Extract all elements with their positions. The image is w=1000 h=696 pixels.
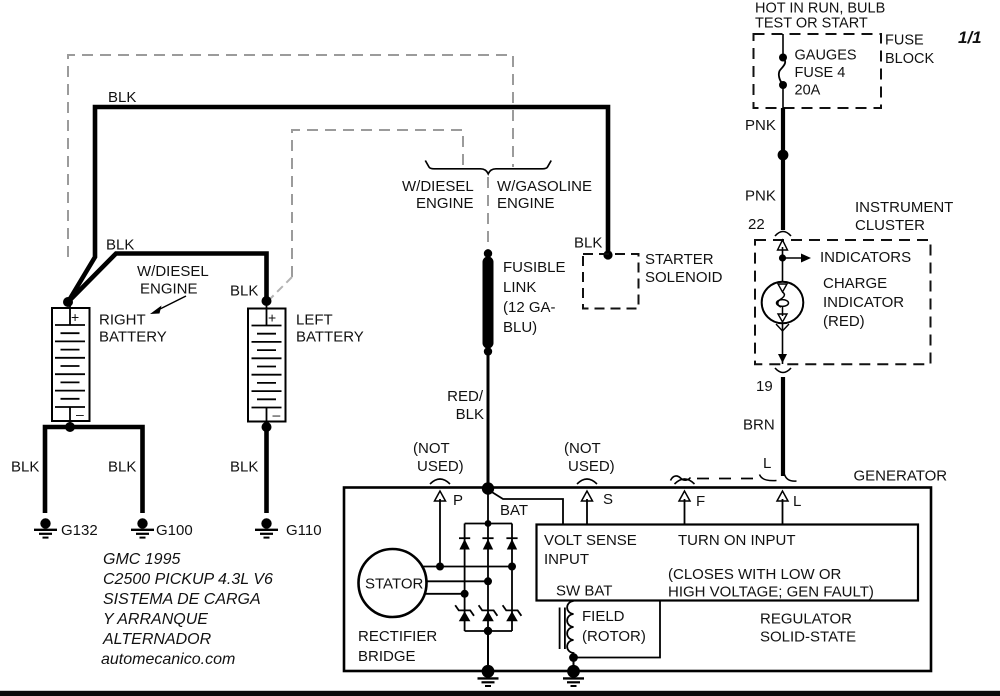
svg-text:PNK: PNK [745,117,776,134]
svg-text:PNK: PNK [745,188,776,205]
svg-text:RIGHT: RIGHT [99,312,146,329]
svg-text:SOLENOID: SOLENOID [645,269,723,286]
svg-text:USED): USED) [568,458,615,475]
svg-text:SW BAT: SW BAT [556,583,612,600]
svg-text:HIGH VOLTAGE; GEN FAULT): HIGH VOLTAGE; GEN FAULT) [668,584,874,601]
svg-text:RECTIFIER: RECTIFIER [358,628,437,645]
svg-text:GAUGES: GAUGES [795,48,857,64]
svg-text:(ROTOR): (ROTOR) [582,628,646,645]
svg-text:1/1: 1/1 [958,28,982,47]
svg-text:USED): USED) [417,458,464,475]
svg-text:BLOCK: BLOCK [885,51,934,67]
svg-text:C2500 PICKUP 4.3L V6: C2500 PICKUP 4.3L V6 [103,571,273,588]
svg-text:ENGINE: ENGINE [140,281,198,298]
svg-text:F: F [696,493,705,510]
svg-text:BLK: BLK [108,89,136,106]
svg-text:22: 22 [748,216,765,233]
svg-text:automecanico.com: automecanico.com [101,651,235,668]
svg-text:GENERATOR: GENERATOR [854,468,948,485]
svg-text:FUSE: FUSE [885,33,924,49]
svg-text:20A: 20A [795,83,821,99]
svg-text:INDICATORS: INDICATORS [820,249,911,266]
svg-text:BLK: BLK [230,283,258,300]
svg-text:–: – [273,407,281,423]
svg-text:(RED): (RED) [823,313,865,330]
svg-text:VOLT SENSE: VOLT SENSE [544,532,637,549]
svg-text:BRIDGE: BRIDGE [358,648,416,665]
svg-text:LINK: LINK [503,279,536,296]
svg-text:(NOT: (NOT [564,440,601,457]
svg-text:CLUSTER: CLUSTER [855,217,925,234]
svg-text:HOT IN RUN, BULB: HOT IN RUN, BULB [755,1,885,17]
svg-text:FUSE 4: FUSE 4 [795,65,846,81]
svg-text:BLU): BLU) [503,319,537,336]
svg-text:INSTRUMENT: INSTRUMENT [855,199,953,216]
svg-text:ENGINE: ENGINE [416,195,474,212]
svg-text:INDICATOR: INDICATOR [823,294,904,311]
svg-text:S: S [603,491,613,508]
svg-text:W/GASOLINE: W/GASOLINE [497,178,592,195]
svg-text:ENGINE: ENGINE [497,195,555,212]
svg-text:FUSIBLE: FUSIBLE [503,259,566,276]
svg-text:L: L [793,493,801,510]
svg-text:BLK: BLK [11,459,39,476]
svg-text:BLK: BLK [106,237,134,254]
svg-text:(CLOSES WITH LOW OR: (CLOSES WITH LOW OR [668,566,842,583]
svg-text:G132: G132 [61,522,98,539]
svg-text:INPUT: INPUT [544,551,589,568]
svg-text:+: + [268,310,276,326]
svg-text:TURN ON INPUT: TURN ON INPUT [678,532,796,549]
svg-text:BAT: BAT [500,502,528,519]
svg-text:REGULATOR: REGULATOR [760,611,852,628]
svg-text:L: L [763,455,771,472]
svg-text:BATTERY: BATTERY [296,329,364,346]
svg-text:ALTERNADOR: ALTERNADOR [102,631,212,648]
svg-text:–: – [76,406,84,422]
svg-text:SISTEMA DE CARGA: SISTEMA DE CARGA [103,591,261,608]
svg-text:+: + [71,309,79,325]
svg-text:STATOR: STATOR [365,576,424,593]
svg-text:BLK: BLK [456,406,484,423]
svg-text:BRN: BRN [743,417,775,434]
svg-text:Y ARRANQUE: Y ARRANQUE [103,611,208,628]
svg-text:STARTER: STARTER [645,251,714,268]
svg-text:RED/: RED/ [447,388,484,405]
svg-text:G110: G110 [286,522,322,539]
svg-text:(NOT: (NOT [413,440,450,457]
svg-text:P: P [453,492,463,509]
svg-text:GMC 1995: GMC 1995 [103,551,180,568]
svg-text:BATTERY: BATTERY [99,329,167,346]
svg-text:SOLID-STATE: SOLID-STATE [760,629,856,646]
svg-text:(12 GA-: (12 GA- [503,299,556,316]
svg-text:TEST OR START: TEST OR START [755,16,868,32]
svg-text:CHARGE: CHARGE [823,275,887,292]
svg-text:BLK: BLK [230,459,258,476]
svg-text:FIELD: FIELD [582,608,625,625]
svg-text:W/DIESEL: W/DIESEL [402,178,474,195]
svg-text:LEFT: LEFT [296,312,333,329]
svg-text:BLK: BLK [574,235,602,252]
svg-text:G100: G100 [156,522,193,539]
svg-text:W/DIESEL: W/DIESEL [137,263,209,280]
svg-text:BLK: BLK [108,459,136,476]
svg-text:19: 19 [756,378,773,395]
